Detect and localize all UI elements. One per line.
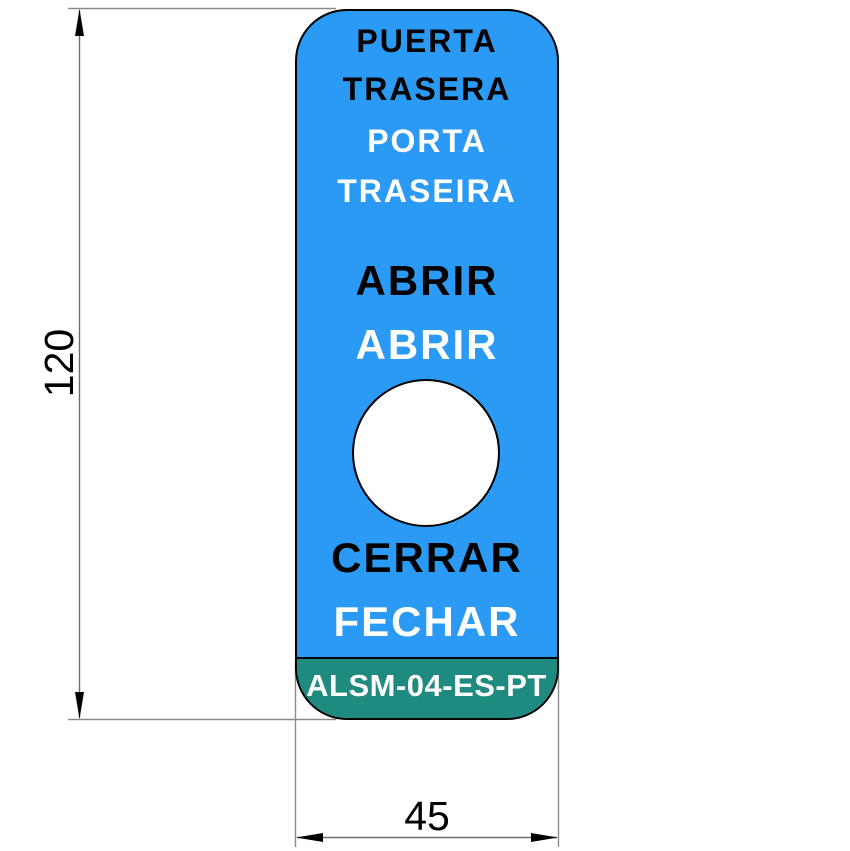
height-arrow-up-icon — [75, 9, 84, 36]
door-name-pt-line2: TRASEIRA — [297, 174, 557, 208]
action-open-pt: ABRIR — [297, 323, 557, 367]
height-dimension-value: 120 — [38, 303, 80, 423]
action-close-pt: FECHAR — [297, 600, 557, 644]
part-code: ALSM-04-ES-PT — [306, 669, 547, 702]
button-hole — [352, 379, 500, 527]
door-name-pt-line1: PORTA — [297, 124, 557, 158]
width-arrow-right-icon — [531, 833, 558, 842]
drawing-canvas: 120 45 PUERTA TRASERA PORTA TRASEIRA ABR… — [0, 0, 850, 851]
door-name-es-line2: TRASERA — [297, 72, 557, 106]
door-name-es-line1: PUERTA — [297, 24, 557, 58]
action-open-es: ABRIR — [297, 259, 557, 303]
action-close-es: CERRAR — [297, 536, 557, 580]
width-arrow-left-icon — [296, 833, 323, 842]
height-arrow-down-icon — [75, 692, 84, 719]
part-code-band: ALSM-04-ES-PT — [295, 657, 559, 720]
label-plate: PUERTA TRASERA PORTA TRASEIRA ABRIR ABRI… — [295, 9, 559, 720]
width-dimension-value: 45 — [367, 795, 487, 837]
